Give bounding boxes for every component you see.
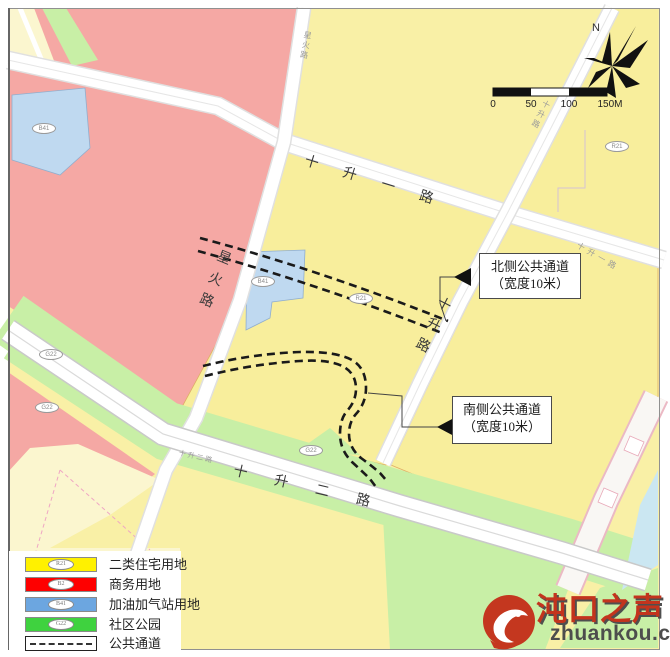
legend-row-commercial: B2 商务用地 bbox=[17, 577, 181, 593]
callout-north-line2: （宽度10米） bbox=[480, 275, 580, 292]
legend-panel: R21 二类住宅用地 B2 商务用地 B41 加油加气站用地 G22 社区公园 … bbox=[9, 551, 181, 650]
parcel-code-gas-central: B41 bbox=[251, 276, 275, 287]
scale-tick-50: 50 bbox=[514, 99, 548, 110]
callout-south-line2: （宽度10米） bbox=[453, 418, 551, 435]
legend-row-passage: 公共通道 bbox=[17, 636, 181, 652]
legend-row-park: G22 社区公园 bbox=[17, 617, 181, 633]
callout-south-line1: 南侧公共通道 bbox=[453, 401, 551, 418]
parcel-code-residential-ne: R21 bbox=[605, 141, 629, 152]
legend-row-gas: B41 加油加气站用地 bbox=[17, 597, 181, 613]
legend-code-commercial: B2 bbox=[48, 579, 74, 590]
legend-label-commercial: 商务用地 bbox=[109, 577, 161, 592]
callout-north-line1: 北侧公共通道 bbox=[480, 258, 580, 275]
legend-row-residential: R21 二类住宅用地 bbox=[17, 557, 181, 573]
legend-code-residential: R21 bbox=[48, 559, 74, 570]
legend-label-gas: 加油加气站用地 bbox=[109, 597, 200, 612]
legend-dash-line bbox=[30, 643, 92, 645]
scale-tick-0: 0 bbox=[476, 99, 510, 110]
callout-north-passage: 北侧公共通道 （宽度10米） bbox=[479, 253, 581, 299]
scale-bar-segment bbox=[493, 88, 531, 96]
north-label: N bbox=[592, 22, 600, 34]
parcel-code-park-west2: G22 bbox=[35, 402, 59, 413]
legend-label-residential: 二类住宅用地 bbox=[109, 557, 187, 572]
scale-tick-150: 150M bbox=[593, 99, 627, 110]
scale-bar-segment bbox=[569, 88, 607, 96]
parcel-code-residential-central: R21 bbox=[349, 293, 373, 304]
watermark-domain: zhuankou.com bbox=[550, 622, 670, 646]
legend-code-park: G22 bbox=[48, 619, 74, 630]
callout-south-passage: 南侧公共通道 （宽度10米） bbox=[452, 396, 552, 444]
watermark: 沌口之声 zhuankou.com bbox=[478, 582, 670, 657]
legend-swatch-passage bbox=[25, 636, 97, 651]
parcel-code-park-west1: G22 bbox=[39, 349, 63, 360]
parcel-code-park-central: G22 bbox=[299, 445, 323, 456]
legend-label-park: 社区公园 bbox=[109, 617, 161, 632]
legend-label-passage: 公共通道 bbox=[109, 636, 161, 651]
planning-map-screenshot: 十升一路 十升一路 十升二路 十升二路 十升路 十升路 星火路 星火路 北侧公共… bbox=[0, 0, 670, 657]
parcel-code-gas-west: B41 bbox=[32, 123, 56, 134]
watermark-logo bbox=[480, 592, 540, 652]
scale-tick-100: 100 bbox=[552, 99, 586, 110]
legend-code-gas: B41 bbox=[48, 599, 74, 610]
